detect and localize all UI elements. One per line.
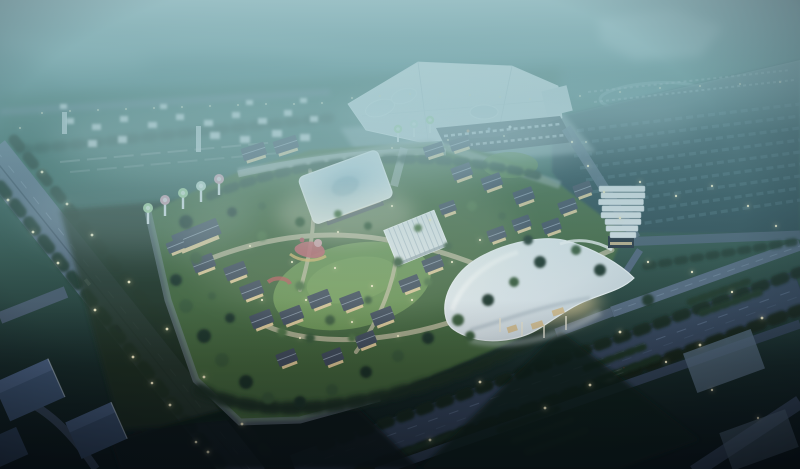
aerial-rendering — [0, 0, 800, 469]
atmosphere — [0, 0, 800, 469]
rendering-canvas — [0, 0, 800, 469]
